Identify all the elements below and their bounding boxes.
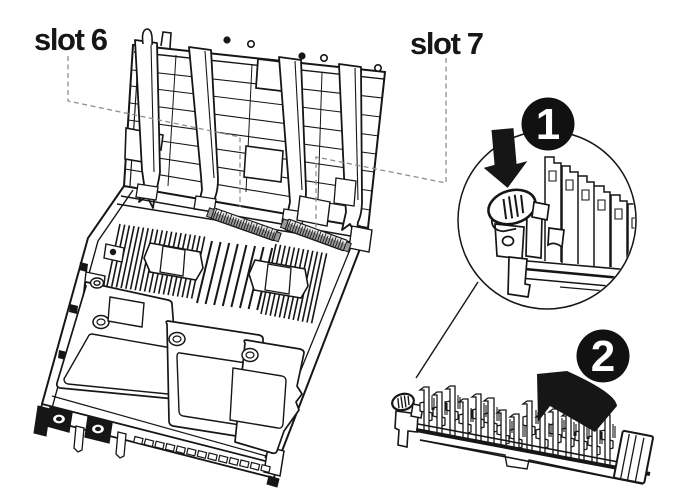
svg-text:1: 1: [536, 100, 560, 149]
svg-text:slot 6: slot 6: [34, 22, 108, 57]
svg-text:slot 7: slot 7: [410, 26, 483, 61]
svg-text:2: 2: [591, 332, 615, 381]
